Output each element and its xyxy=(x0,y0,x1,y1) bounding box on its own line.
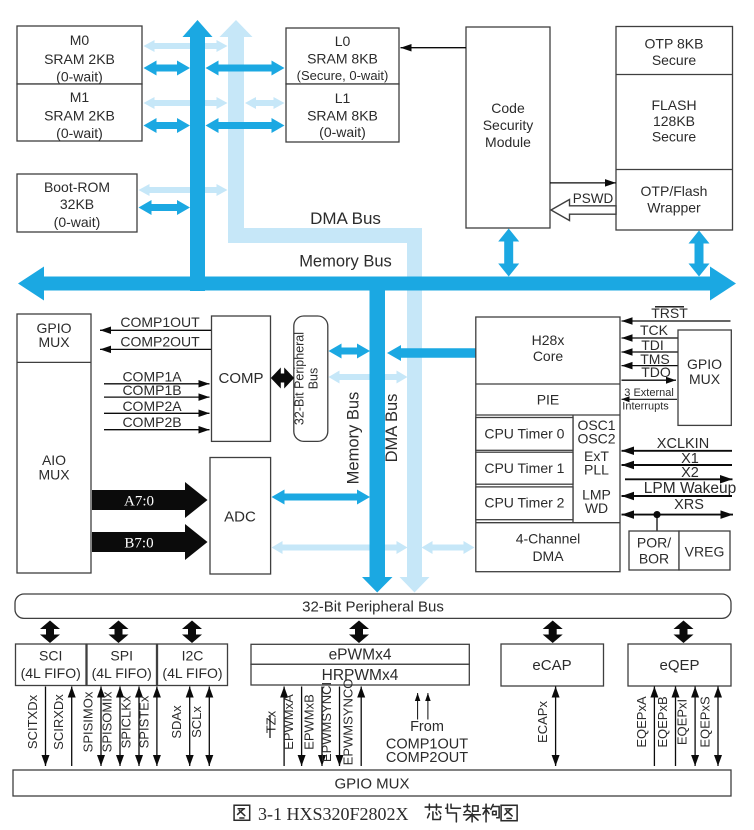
svg-text:eCAP: eCAP xyxy=(532,657,571,674)
svg-text:eQEP: eQEP xyxy=(659,657,699,674)
svg-text:A7:0: A7:0 xyxy=(124,494,154,510)
svg-text:SRAM 8KB: SRAM 8KB xyxy=(307,108,378,124)
svg-text:Wrapper: Wrapper xyxy=(647,200,701,216)
svg-text:32-Bit Peripheral: 32-Bit Peripheral xyxy=(293,332,307,425)
svg-text:(4L FIFO): (4L FIFO) xyxy=(92,665,152,681)
svg-text:SDAx: SDAx xyxy=(169,705,184,739)
svg-text:TCK: TCK xyxy=(640,322,669,338)
svg-text:COMP2OUT: COMP2OUT xyxy=(386,750,468,766)
svg-text:3 External: 3 External xyxy=(624,387,674,399)
svg-text:LPM Wakeup: LPM Wakeup xyxy=(644,480,736,497)
svg-text:SPISOMIx: SPISOMIx xyxy=(100,691,115,752)
svg-text:EQEPxS: EQEPxS xyxy=(698,696,713,748)
svg-text:OSC2: OSC2 xyxy=(577,431,615,447)
svg-text:SPI: SPI xyxy=(110,648,133,664)
svg-text:EPWMSYNCO: EPWMSYNCO xyxy=(341,679,356,766)
svg-text:M1: M1 xyxy=(70,89,90,105)
svg-text:SCIRXDx: SCIRXDx xyxy=(51,694,66,750)
svg-text:ADC: ADC xyxy=(224,509,256,526)
svg-text:Memory Bus: Memory Bus xyxy=(345,392,363,485)
svg-text:BOR: BOR xyxy=(639,551,669,567)
svg-text:OTP/Flash: OTP/Flash xyxy=(641,183,708,199)
svg-text:XRS: XRS xyxy=(674,497,704,513)
svg-text:GPIO: GPIO xyxy=(687,356,722,372)
svg-text:FLASH: FLASH xyxy=(651,97,696,113)
svg-text:(0-wait): (0-wait) xyxy=(319,124,366,140)
svg-text:PLL: PLL xyxy=(584,461,609,477)
svg-text:DMA Bus: DMA Bus xyxy=(383,394,401,463)
svg-text:MUX: MUX xyxy=(38,334,70,350)
svg-text:(0-wait): (0-wait) xyxy=(56,69,103,85)
svg-text:I2C: I2C xyxy=(182,648,204,664)
svg-text:32KB: 32KB xyxy=(60,196,94,212)
svg-text:OTP 8KB: OTP 8KB xyxy=(645,36,704,52)
svg-text:EQEPxB: EQEPxB xyxy=(655,696,670,747)
svg-text:CPU Timer 1: CPU Timer 1 xyxy=(484,460,564,476)
svg-text:SRAM 8KB: SRAM 8KB xyxy=(307,51,378,67)
svg-text:Interrupts: Interrupts xyxy=(622,401,669,413)
svg-text:32-Bit Peripheral Bus: 32-Bit Peripheral Bus xyxy=(302,598,444,615)
svg-text:EPWMxA: EPWMxA xyxy=(281,694,296,750)
svg-text:DMA: DMA xyxy=(532,548,564,564)
svg-text:(0-wait): (0-wait) xyxy=(54,214,101,230)
svg-text:VREG: VREG xyxy=(685,544,725,560)
svg-text:Secure: Secure xyxy=(652,129,697,145)
svg-text:M0: M0 xyxy=(70,32,90,48)
svg-text:CPU Timer 2: CPU Timer 2 xyxy=(484,495,564,511)
svg-text:B7:0: B7:0 xyxy=(124,536,153,552)
svg-text:ECAPx: ECAPx xyxy=(535,701,550,743)
svg-text:EPWMSYNCI: EPWMSYNCI xyxy=(319,682,334,762)
svg-text:HRPWMx4: HRPWMx4 xyxy=(322,667,399,684)
svg-text:EQEPxI: EQEPxI xyxy=(675,699,690,745)
svg-text:SPISTEx: SPISTEx xyxy=(136,695,151,748)
svg-text:DMA Bus: DMA Bus xyxy=(310,209,381,228)
svg-text:COMP1B: COMP1B xyxy=(122,382,181,398)
svg-text:Code: Code xyxy=(491,100,525,116)
svg-text:SCLx: SCLx xyxy=(189,706,204,738)
svg-text:SPICLKx: SPICLKx xyxy=(119,695,134,748)
svg-text:SRAM 2KB: SRAM 2KB xyxy=(44,108,115,124)
svg-text:Module: Module xyxy=(485,134,531,150)
svg-text:WD: WD xyxy=(585,500,608,516)
svg-text:Security: Security xyxy=(483,117,534,133)
svg-text:COMP1OUT: COMP1OUT xyxy=(120,314,200,330)
svg-text:COMP2B: COMP2B xyxy=(122,414,181,430)
svg-text:COMP2OUT: COMP2OUT xyxy=(120,334,200,350)
svg-text:XCLKIN: XCLKIN xyxy=(657,436,709,452)
svg-text:POR/: POR/ xyxy=(637,535,671,551)
svg-text:CPU Timer 0: CPU Timer 0 xyxy=(484,426,564,442)
svg-text:Core: Core xyxy=(533,348,564,364)
svg-text:L1: L1 xyxy=(335,90,351,106)
svg-text:TZx: TZx xyxy=(264,710,279,733)
svg-text:SCITXDx: SCITXDx xyxy=(25,694,40,749)
svg-text:H28x: H28x xyxy=(532,332,565,348)
svg-text:(4L FIFO): (4L FIFO) xyxy=(162,665,222,681)
svg-text:PIE: PIE xyxy=(537,392,560,408)
svg-text:(0-wait): (0-wait) xyxy=(56,125,103,141)
svg-text:COMP2A: COMP2A xyxy=(122,398,182,414)
svg-text:MUX: MUX xyxy=(38,467,70,483)
svg-text:From: From xyxy=(410,719,444,735)
svg-text:SCI: SCI xyxy=(39,648,62,664)
svg-text:SPISIMOx: SPISIMOx xyxy=(81,691,96,752)
svg-text:3-1 HXS320F2802X: 3-1 HXS320F2802X xyxy=(258,804,409,824)
svg-text:ePWMx4: ePWMx4 xyxy=(329,647,392,664)
svg-text:128KB: 128KB xyxy=(653,113,695,129)
svg-text:SRAM 2KB: SRAM 2KB xyxy=(44,51,115,67)
svg-text:MUX: MUX xyxy=(689,371,721,387)
svg-text:Bus: Bus xyxy=(307,368,321,390)
svg-text:Secure: Secure xyxy=(652,52,697,68)
svg-text:EQEPxA: EQEPxA xyxy=(634,696,649,748)
svg-text:(4L FIFO): (4L FIFO) xyxy=(21,665,81,681)
svg-text:(Secure, 0-wait): (Secure, 0-wait) xyxy=(297,68,389,83)
svg-text:GPIO MUX: GPIO MUX xyxy=(334,776,409,793)
svg-text:TRST: TRST xyxy=(651,305,688,321)
svg-text:L0: L0 xyxy=(335,33,351,49)
svg-text:Boot-ROM: Boot-ROM xyxy=(44,179,110,195)
svg-text:PSWD: PSWD xyxy=(573,191,614,206)
svg-text:Memory Bus: Memory Bus xyxy=(299,253,392,271)
svg-text:4-Channel: 4-Channel xyxy=(516,531,581,547)
svg-text:EPWMxB: EPWMxB xyxy=(302,694,317,750)
svg-text:COMP: COMP xyxy=(219,370,264,387)
